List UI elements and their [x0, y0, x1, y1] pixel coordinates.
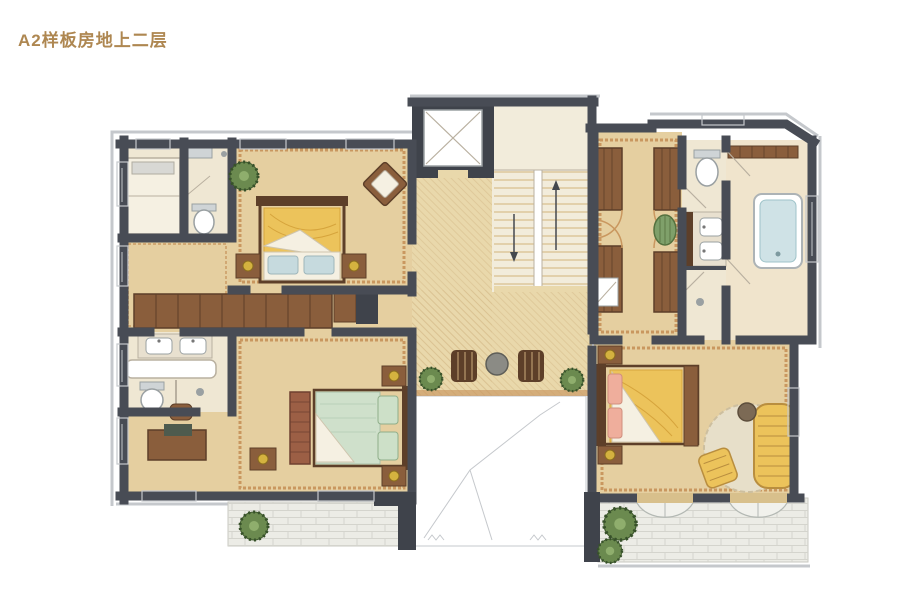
lamp-icon — [258, 454, 268, 464]
stair-stringer — [534, 170, 542, 288]
pillow — [608, 374, 622, 404]
floor-plan-page: A2样板房地上二层 — [0, 0, 900, 600]
bathtub-icon — [126, 360, 216, 378]
lounge-chair — [518, 350, 544, 382]
desk-monitor — [164, 424, 192, 436]
wardrobe-row — [134, 294, 332, 328]
void-open-below — [414, 390, 590, 546]
lamp-icon — [605, 450, 615, 460]
side-table — [738, 403, 756, 421]
staff-bedroom-furniture — [126, 158, 180, 234]
toilet-icon — [194, 210, 214, 234]
footboard-bench — [684, 366, 698, 446]
wardrobe — [654, 252, 680, 312]
round-table — [486, 353, 508, 375]
shower-room — [682, 268, 726, 340]
shelf — [728, 146, 798, 158]
wardrobe — [596, 148, 622, 210]
pillow — [608, 408, 622, 438]
pillow — [378, 396, 398, 424]
lamp-icon — [605, 350, 615, 360]
lounge-chair — [451, 350, 477, 382]
shower-head-icon — [196, 388, 204, 396]
elevator — [412, 98, 494, 178]
pillow — [378, 432, 398, 460]
wardrobe — [654, 148, 680, 210]
floor-plan-drawing — [0, 0, 900, 600]
lamp-icon — [389, 371, 399, 381]
lamp-icon — [243, 261, 253, 271]
shower-head-icon — [221, 151, 227, 157]
shower-head-icon — [696, 298, 704, 306]
pillow — [132, 162, 174, 174]
lamp-icon — [349, 261, 359, 271]
rattan-bench — [290, 392, 310, 464]
vanity-fixtures — [684, 212, 726, 266]
pillow — [304, 256, 334, 274]
pillow — [268, 256, 298, 274]
toilet-icon — [696, 158, 718, 186]
lamp-icon — [389, 471, 399, 481]
side-cabinet — [334, 292, 356, 322]
